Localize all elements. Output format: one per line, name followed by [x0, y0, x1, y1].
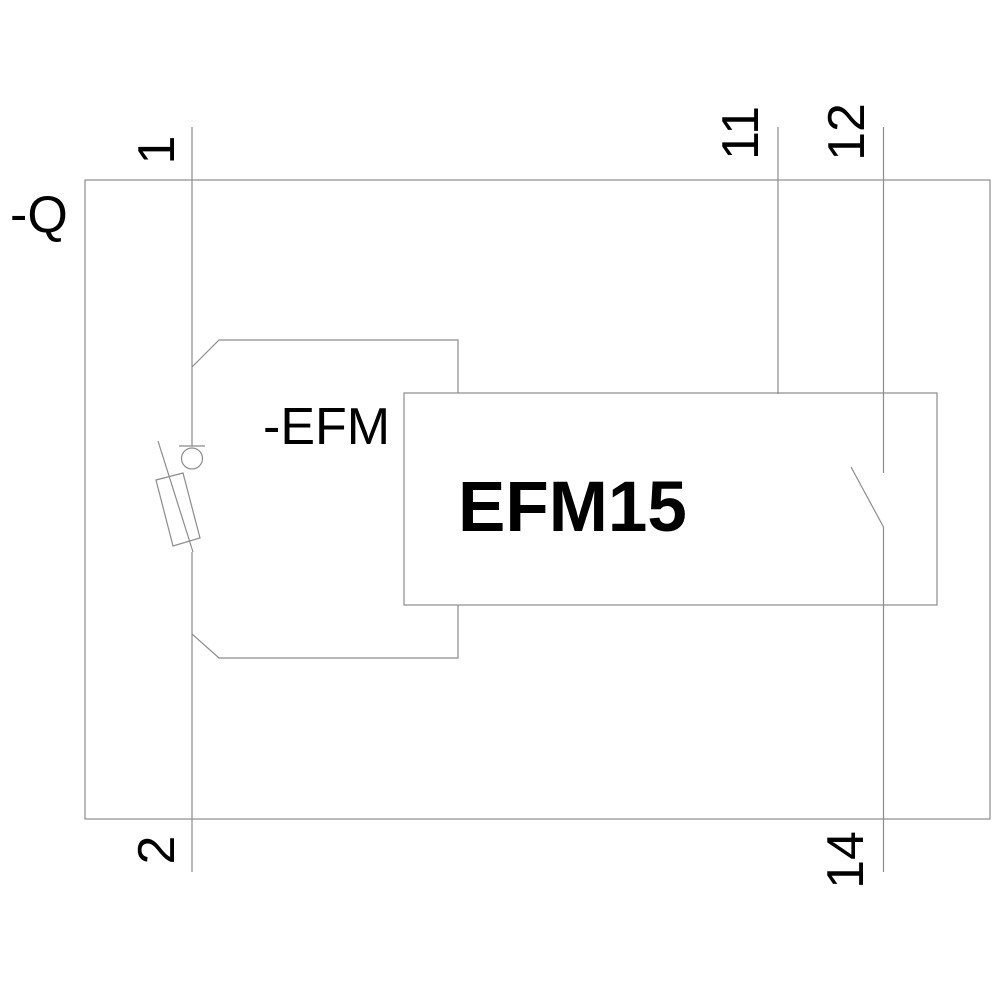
module-name-efm15: EFM15: [458, 468, 687, 547]
terminal-label-2: 2: [128, 836, 186, 865]
module-label-efm: -EFM: [263, 398, 390, 456]
schematic-canvas: -Q -EFM EFM15 1 11 12 2 14: [0, 0, 1000, 1000]
fuse-body: [156, 473, 200, 546]
terminal-label-14: 14: [817, 831, 875, 889]
terminal-label-1: 1: [128, 136, 186, 165]
circuit-diagram: -Q -EFM EFM15 1 11 12 2 14: [0, 0, 1000, 1000]
terminal-label-11: 11: [712, 106, 770, 160]
fuse-hinge-circle: [182, 448, 203, 469]
device-label-q: -Q: [10, 186, 68, 244]
terminal-label-12: 12: [818, 103, 876, 161]
